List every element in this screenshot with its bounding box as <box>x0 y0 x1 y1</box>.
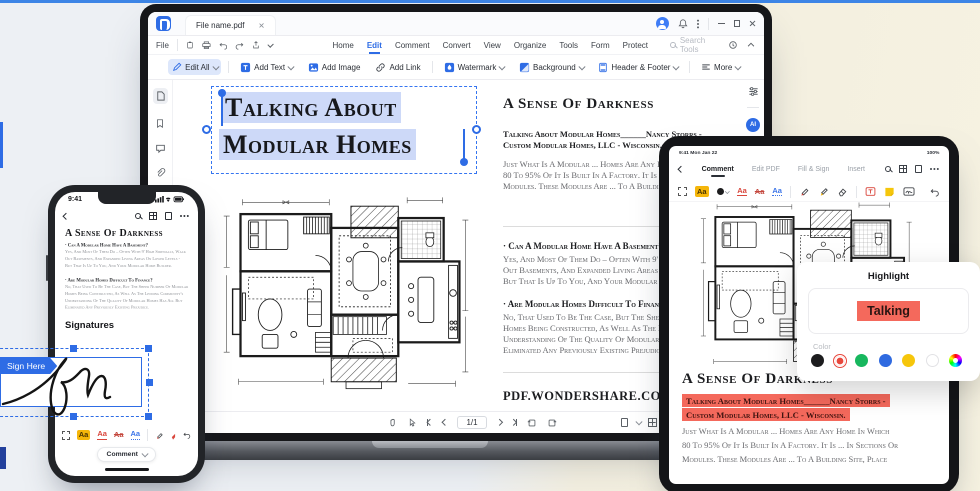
lasso-select-icon[interactable] <box>678 187 687 196</box>
search-icon <box>670 42 676 48</box>
bookmarks-panel-icon[interactable] <box>155 118 165 129</box>
tab-fill-sign[interactable]: Fill & Sign <box>798 166 830 173</box>
top-accent-strip <box>0 0 980 3</box>
page-icon[interactable] <box>915 165 922 173</box>
text-cursor-bar <box>221 96 223 126</box>
back-icon[interactable] <box>63 213 69 219</box>
more-tools-chevron-icon[interactable] <box>268 41 274 47</box>
add-link-label: Add Link <box>389 63 420 72</box>
left-accent-bar <box>0 122 3 168</box>
highlighter-icon[interactable] <box>818 186 829 197</box>
header-footer-button[interactable]: Header & Footer <box>594 59 682 76</box>
collapse-toolbar-icon[interactable] <box>746 40 756 50</box>
color-swatch-black[interactable] <box>811 354 824 367</box>
title-bar: File name.pdf <box>148 12 764 36</box>
divider <box>432 61 433 73</box>
add-text-label: Add Text <box>254 63 285 72</box>
divider <box>708 18 709 30</box>
edit-all-label: Edit All <box>185 63 209 72</box>
resize-handle-left[interactable] <box>202 125 211 134</box>
search-placeholder: Search Tools <box>680 36 720 54</box>
add-image-label: Add Image <box>322 63 361 72</box>
single-page-view-icon[interactable] <box>621 418 628 426</box>
headline-line-2: Modular Homes <box>219 129 416 160</box>
header-footer-label: Header & Footer <box>611 63 670 72</box>
menu-protect[interactable]: Protect <box>623 41 648 50</box>
tab-edit-pdf[interactable]: Edit PDF <box>752 166 780 173</box>
watermark-icon <box>444 62 455 73</box>
watermark-label: Watermark <box>458 63 497 72</box>
chevron-down-icon <box>142 451 148 457</box>
menu-items: Home Edit Comment Convert View Organize … <box>332 41 648 50</box>
strikethrough-text-icon[interactable]: Aa <box>755 188 765 196</box>
add-text-button[interactable]: Add Text <box>236 59 297 76</box>
add-link-icon <box>375 62 386 73</box>
more-button[interactable]: More <box>697 59 744 75</box>
marketing-scene: File name.pdf File <box>0 0 980 491</box>
highlight-preview-text: Talking <box>857 301 920 321</box>
notifications-bell-icon[interactable] <box>678 18 688 29</box>
edit-all-button[interactable]: Edit All <box>168 59 221 75</box>
clipboard-icon[interactable] <box>186 40 194 50</box>
highlight-text-icon[interactable]: Aa <box>695 186 709 197</box>
more-icon[interactable] <box>930 168 932 170</box>
battery-percent: 100% <box>926 150 939 156</box>
highlighted-line: Custom Modular Homes, LLC - Wisconsin. <box>682 408 850 421</box>
tablet-annotation-toolbar: Aa Aa Aa Aa <box>669 182 949 202</box>
color-swatches <box>811 354 962 367</box>
search-icon[interactable] <box>885 166 891 172</box>
headline-line-1: Talking About <box>221 92 401 123</box>
popup-title: Highlight <box>797 271 980 282</box>
tab-title: File name.pdf <box>196 21 244 30</box>
phone-status-bar: 9:41 <box>55 195 198 203</box>
file-menu[interactable]: File <box>156 41 169 50</box>
menu-home[interactable]: Home <box>332 41 353 50</box>
resize-handle-right[interactable] <box>472 125 481 134</box>
selection-handle[interactable] <box>146 379 153 386</box>
comments-panel-icon[interactable] <box>155 143 166 154</box>
background-label: Background <box>533 63 576 72</box>
selection-handle[interactable] <box>145 413 152 420</box>
divider <box>177 39 178 51</box>
phone-nav-bar <box>55 208 198 224</box>
first-page-icon[interactable] <box>427 419 433 426</box>
minimize-button[interactable] <box>718 23 725 24</box>
phone-paragraph: No, That Used To Be The Case, But The Sh… <box>65 284 195 311</box>
more-icon[interactable] <box>180 215 182 217</box>
home-indicator[interactable] <box>105 468 149 471</box>
close-button[interactable] <box>749 20 756 27</box>
search-tools[interactable]: Search Tools <box>670 36 720 54</box>
thumbnails-icon[interactable] <box>149 212 157 220</box>
highlight-popup: Highlight Talking Color <box>797 262 980 381</box>
undo-icon[interactable] <box>183 430 191 440</box>
edit-toolbar: Edit All Add Text Add Image Add Link <box>148 55 764 80</box>
divider <box>689 61 690 73</box>
more-label: More <box>714 63 732 72</box>
thumbnails-icon[interactable] <box>899 165 907 173</box>
page-layout-icon[interactable] <box>648 418 656 426</box>
more-lines-icon <box>701 62 711 72</box>
thumbnails-panel-icon[interactable] <box>153 88 168 104</box>
tablet-article-paragraph: Just What Is A Modular ... Homes Are Any… <box>682 424 898 466</box>
phone-question-1: · Can A Modular Home Have A Basement? Ye… <box>65 242 195 269</box>
tab-close-icon[interactable] <box>259 23 265 29</box>
add-image-icon <box>308 62 319 73</box>
text-box-icon[interactable] <box>865 186 876 197</box>
eraser-icon[interactable] <box>837 186 848 197</box>
selection-handle[interactable] <box>145 345 152 352</box>
chevron-down-icon <box>578 63 584 69</box>
menu-form[interactable]: Form <box>591 41 610 50</box>
sign-here-flag[interactable]: Sign Here <box>0 358 57 374</box>
window-menu-icon[interactable] <box>697 23 699 25</box>
chevron-down-icon <box>212 63 218 69</box>
signature-selection: Sign Here <box>0 340 170 435</box>
color-swatch-red-selected[interactable] <box>835 356 845 366</box>
tab-comment[interactable]: Comment <box>702 166 734 173</box>
add-image-button[interactable]: Add Image <box>304 59 365 76</box>
article-heading: A Sense Of Darkness <box>503 96 764 113</box>
color-swatch-yellow[interactable] <box>902 354 915 367</box>
undo-icon[interactable] <box>930 187 940 197</box>
tablet-nav-bar: Comment Edit PDF Fill & Sign Insert <box>669 160 949 178</box>
comment-mode-button[interactable]: Comment <box>97 447 157 462</box>
pdfelement-logo-icon <box>156 16 171 31</box>
color-swatch-white[interactable] <box>926 354 939 367</box>
insert-menu[interactable]: Insert <box>847 166 865 173</box>
page-icon[interactable] <box>165 212 172 220</box>
menu-bar: File Home Edit Comment Convert View Orga… <box>148 36 764 55</box>
sticky-note-icon[interactable] <box>884 186 895 197</box>
phone-device: 9:41 A Sense Of Darkness · Can A Mod <box>48 185 205 483</box>
redo-icon[interactable] <box>235 41 244 50</box>
maximize-button[interactable] <box>734 20 740 26</box>
color-picker-icon[interactable] <box>717 188 730 195</box>
chevron-down-icon <box>288 63 294 69</box>
add-link-button[interactable]: Add Link <box>371 59 424 76</box>
tablet-status-bar: 9:41 Mon Jan 22 100% <box>669 148 949 157</box>
next-page-icon[interactable] <box>496 419 502 425</box>
color-swatch-green[interactable] <box>855 354 868 367</box>
signatures-label: Signatures <box>65 320 114 331</box>
background-button[interactable]: Background <box>515 59 587 76</box>
sync-icon[interactable] <box>728 40 738 50</box>
status-time: 9:41 <box>68 196 82 203</box>
phone-paragraph: Yes, And Most Of Them Do – Often With 9'… <box>65 249 195 269</box>
chevron-down-icon <box>673 63 679 69</box>
corner-accent <box>0 447 6 469</box>
floor-plan <box>205 194 491 392</box>
pencil-icon <box>172 62 182 72</box>
print-icon[interactable] <box>202 40 211 50</box>
hand-tool-icon[interactable] <box>388 417 398 428</box>
phone-question-2: · Are Modular Homes Difficult To Finance… <box>65 277 195 311</box>
menu-organize[interactable]: Organize <box>514 41 546 50</box>
back-icon[interactable] <box>678 166 684 172</box>
clipped-tool-icon[interactable] <box>171 430 176 441</box>
share-icon[interactable] <box>252 40 260 50</box>
header-footer-icon <box>598 62 608 73</box>
divider <box>790 186 791 198</box>
underline-text-icon[interactable]: Aa <box>737 187 747 197</box>
highlight-preview-box: Talking <box>808 288 969 334</box>
phone-article-heading: A Sense Of Darkness <box>65 228 163 239</box>
color-swatch-custom[interactable] <box>949 354 962 367</box>
chevron-down-icon <box>499 63 505 69</box>
rotate-left-icon[interactable] <box>527 418 537 428</box>
account-avatar[interactable] <box>656 17 669 30</box>
page-indicator[interactable]: 1/1 <box>457 416 486 429</box>
add-text-icon <box>240 62 251 73</box>
divider <box>228 61 229 73</box>
watermark-button[interactable]: Watermark <box>440 59 508 76</box>
rotate-right-icon[interactable] <box>547 418 557 428</box>
chevron-down-icon <box>735 63 741 69</box>
signature-pad-icon[interactable] <box>903 186 915 197</box>
undo-icon[interactable] <box>219 41 228 50</box>
text-cursor-bar <box>463 129 465 159</box>
status-time-date: 9:41 Mon Jan 22 <box>679 150 717 156</box>
comment-mode-label: Comment <box>107 451 138 458</box>
menu-comment[interactable]: Comment <box>395 41 430 50</box>
search-icon[interactable] <box>135 213 141 219</box>
background-icon <box>519 62 530 73</box>
document-tab[interactable]: File name.pdf <box>185 15 276 35</box>
chevron-down-icon[interactable] <box>635 419 641 425</box>
highlighted-line: Talking About Modular Homes______Nancy S… <box>682 394 890 407</box>
last-page-icon[interactable] <box>511 419 517 426</box>
attachments-panel-icon[interactable] <box>155 168 166 179</box>
previous-page-icon[interactable] <box>442 419 448 425</box>
color-swatch-blue[interactable] <box>879 354 892 367</box>
pen-icon[interactable] <box>799 186 810 197</box>
status-icons <box>155 195 185 203</box>
menu-convert[interactable]: Convert <box>443 41 471 50</box>
squiggly-underline-icon[interactable]: Aa <box>772 187 782 197</box>
menu-tools[interactable]: Tools <box>559 41 578 50</box>
menu-view[interactable]: View <box>484 41 501 50</box>
select-tool-icon[interactable] <box>408 417 417 428</box>
divider <box>856 186 857 198</box>
color-section-label: Color <box>813 342 831 351</box>
menu-edit[interactable]: Edit <box>367 41 382 50</box>
